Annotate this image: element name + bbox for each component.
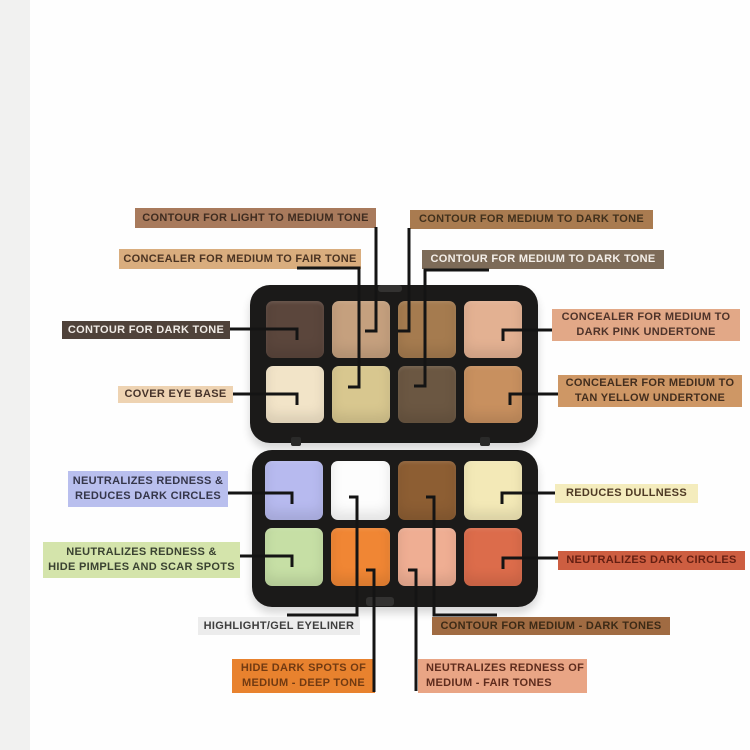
swatch-neutralizes-redness-dark-circles (265, 461, 323, 520)
label-line: CONCEALER FOR MEDIUM TO (566, 376, 735, 391)
label-reduces-dullness: REDUCES DULLNESS (555, 484, 698, 503)
label-concealer-dark-pink: CONCEALER FOR MEDIUM TODARK PINK UNDERTO… (552, 309, 740, 341)
label-contour-medium-dark-tones: CONTOUR FOR MEDIUM - DARK TONES (432, 617, 670, 635)
label-neutralizes-pimples: NEUTRALIZES REDNESS &HIDE PIMPLES AND SC… (43, 542, 240, 578)
swatch-concealer-tan-yellow-undertone (464, 366, 522, 423)
label-concealer-tan-yellow: CONCEALER FOR MEDIUM TOTAN YELLOW UNDERT… (558, 375, 742, 407)
palette-top-swatch-grid (266, 301, 522, 423)
label-line: MEDIUM - FAIR TONES (426, 676, 552, 691)
swatch-neutralizes-redness-fair (398, 528, 456, 587)
label-contour-light-medium: CONTOUR FOR LIGHT TO MEDIUM TONE (135, 208, 376, 228)
label-neutralizes-reduces: NEUTRALIZES REDNESS &REDUCES DARK CIRCLE… (68, 471, 228, 507)
label-line: TAN YELLOW UNDERTONE (575, 391, 725, 406)
swatch-contour-light-medium-tone (332, 301, 390, 358)
swatch-contour-dark-tone (266, 301, 324, 358)
label-line: HIGHLIGHT/GEL EYELINER (204, 619, 355, 634)
label-line: CONTOUR FOR DARK TONE (68, 323, 224, 338)
label-contour-dark: CONTOUR FOR DARK TONE (62, 321, 230, 339)
palette-infographic: CONTOUR FOR LIGHT TO MEDIUM TONECONCEALE… (0, 0, 750, 750)
swatch-neutralizes-redness-pimples-scars (265, 528, 323, 587)
label-line: CONTOUR FOR MEDIUM - DARK TONES (441, 619, 662, 634)
swatch-concealer-medium-fair-tone (332, 366, 390, 423)
label-line: REDUCES DARK CIRCLES (75, 489, 221, 504)
swatch-contour-medium-dark-tones (398, 461, 456, 520)
clasp-1 (378, 285, 402, 292)
palette-top-half (250, 285, 538, 443)
label-cover-eye-base: COVER EYE BASE (118, 386, 233, 403)
label-neutralizes-dark-circles: NEUTRALIZES DARK CIRCLES (558, 551, 745, 570)
label-line: NEUTRALIZES REDNESS OF (426, 661, 584, 676)
label-contour-medium-dark-2: CONTOUR FOR MEDIUM TO DARK TONE (422, 250, 664, 269)
swatch-concealer-dark-pink-undertone (464, 301, 522, 358)
label-line: HIDE DARK SPOTS OF (241, 661, 366, 676)
swatch-cover-eye-base (266, 366, 324, 423)
swatch-neutralizes-dark-circles (464, 528, 522, 587)
swatch-contour-medium-dark-tone-a (398, 301, 456, 358)
label-line: CONTOUR FOR LIGHT TO MEDIUM TONE (142, 211, 369, 226)
label-line: COVER EYE BASE (124, 387, 226, 402)
swatch-reduces-dullness (464, 461, 522, 520)
label-contour-medium-dark-1: CONTOUR FOR MEDIUM TO DARK TONE (410, 210, 653, 229)
label-hide-dark-spots: HIDE DARK SPOTS OFMEDIUM - DEEP TONE (232, 659, 375, 693)
clasp-2 (366, 597, 394, 606)
background-left-strip (0, 0, 30, 750)
label-line: NEUTRALIZES REDNESS & (73, 474, 224, 489)
label-line: HIDE PIMPLES AND SCAR SPOTS (48, 560, 235, 575)
label-line: NEUTRALIZES DARK CIRCLES (566, 553, 736, 568)
label-line: CONTOUR FOR MEDIUM TO DARK TONE (419, 212, 644, 227)
label-line: REDUCES DULLNESS (566, 486, 687, 501)
label-neutralizes-redness-fair: NEUTRALIZES REDNESS OFMEDIUM - FAIR TONE… (418, 659, 587, 693)
palette-bottom-half (252, 450, 538, 607)
label-concealer-medium-fair: CONCEALER FOR MEDIUM TO FAIR TONE (119, 249, 361, 269)
hinge-tab-2 (480, 437, 490, 446)
swatch-contour-medium-dark-tone-b (398, 366, 456, 423)
label-line: MEDIUM - DEEP TONE (242, 676, 365, 691)
palette-bottom-swatch-grid (265, 461, 522, 586)
label-highlight-gel: HIGHLIGHT/GEL EYELINER (198, 617, 360, 635)
hinge-tab-1 (291, 437, 301, 446)
label-line: CONTOUR FOR MEDIUM TO DARK TONE (430, 252, 655, 267)
swatch-highlight-gel-eyeliner (331, 461, 389, 520)
label-line: NEUTRALIZES REDNESS & (66, 545, 217, 560)
label-line: DARK PINK UNDERTONE (576, 325, 715, 340)
label-line: CONCEALER FOR MEDIUM TO FAIR TONE (123, 252, 356, 267)
swatch-hide-dark-spots (331, 528, 389, 587)
label-line: CONCEALER FOR MEDIUM TO (562, 310, 731, 325)
